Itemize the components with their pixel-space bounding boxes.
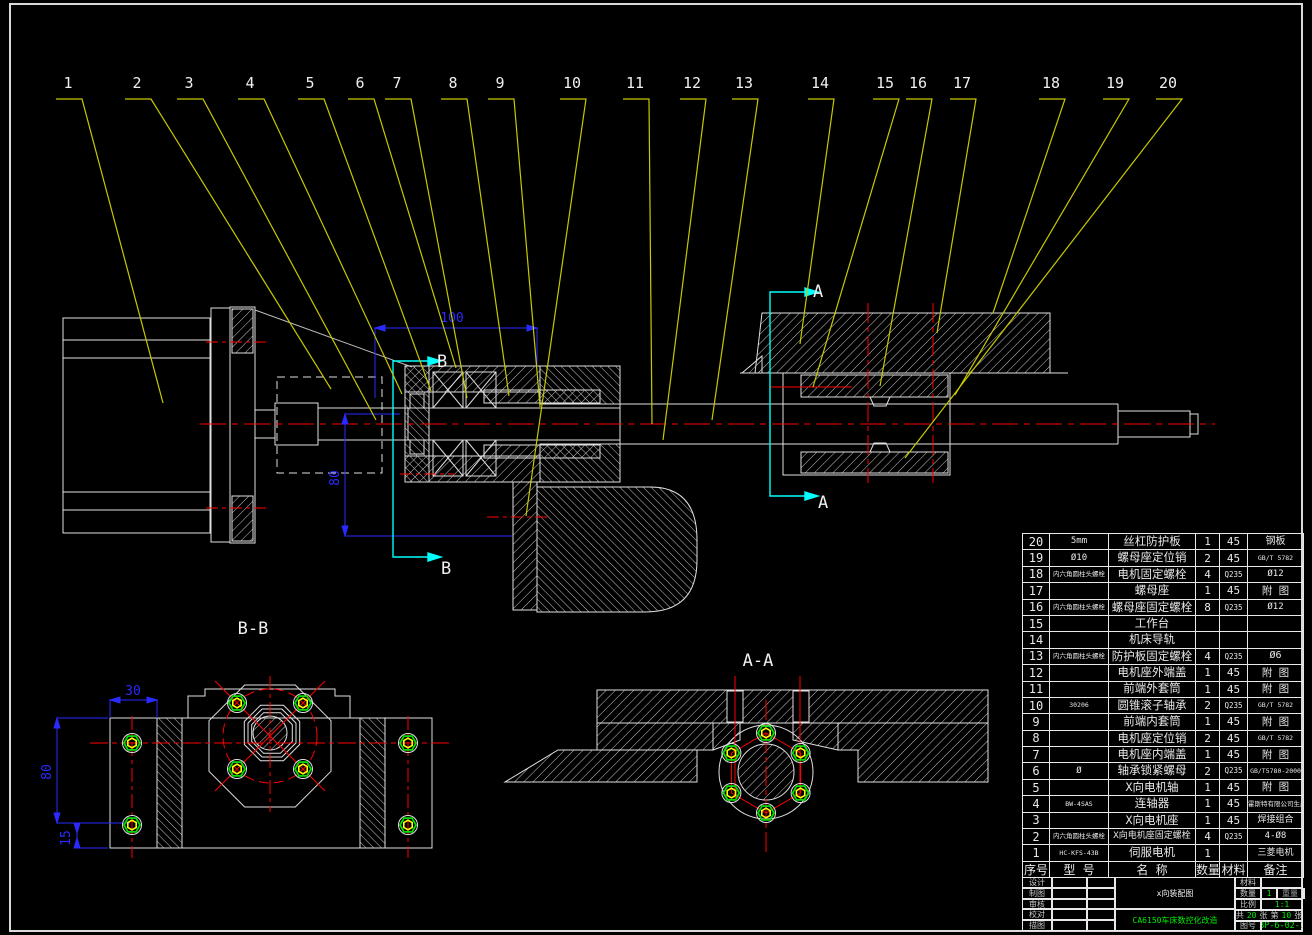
bom-model	[1050, 632, 1109, 648]
tb-sheets-total: 20	[1247, 911, 1257, 920]
callout-number-1: 1	[63, 74, 72, 92]
section-b-bottom: B	[441, 559, 451, 579]
bom-header-name: 名 称	[1109, 861, 1196, 877]
leader-line-4	[238, 99, 402, 394]
bom-qty: 2	[1196, 697, 1220, 713]
tb-sheets-l4: 张	[1294, 910, 1302, 921]
bom-model: Ø10	[1050, 550, 1109, 566]
tb-role-label: 描图	[1022, 920, 1052, 931]
bom-note: 附 图	[1248, 714, 1304, 730]
bom-name: 连轴器	[1109, 796, 1196, 812]
bom-row-7: 7电机座内端盖145附 图	[1023, 747, 1304, 763]
leader-line-9	[488, 99, 540, 407]
tb-sheets-l3: 第	[1271, 910, 1279, 921]
bom-seq: 20	[1023, 534, 1050, 550]
bom-model: 内六角圆柱头螺栓	[1050, 599, 1109, 615]
tb-sheets-l1: 共	[1236, 910, 1244, 921]
bom-header-row: 序号型 号名 称数量材料备注	[1023, 861, 1304, 877]
bom-header-model: 型 号	[1050, 861, 1109, 877]
bom-note: 焊接组合	[1248, 812, 1304, 828]
bom-name: 螺母座	[1109, 583, 1196, 599]
tb-role-label: 审核	[1022, 899, 1052, 910]
bom-header-seq: 序号	[1023, 861, 1050, 877]
bom-row-15: 15工作台	[1023, 615, 1304, 631]
bom-name: 电机座外端盖	[1109, 665, 1196, 681]
bom-seq: 16	[1023, 599, 1050, 615]
section-b-top: B	[437, 352, 447, 372]
bom-model	[1050, 681, 1109, 697]
bom-name: 螺母座固定螺栓	[1109, 599, 1196, 615]
bom-qty: 2	[1196, 730, 1220, 746]
aa-view-title: A-A	[743, 651, 774, 671]
bom-seq: 13	[1023, 648, 1050, 664]
bom-seq: 9	[1023, 714, 1050, 730]
bom-row-1: 1HC-KFS-43B伺服电机1三菱电机	[1023, 845, 1304, 861]
bom-qty	[1196, 632, 1220, 648]
callout-number-13: 13	[735, 74, 753, 92]
callout-number-4: 4	[245, 74, 254, 92]
bom-row-16: 16内六角圆柱头螺栓螺母座固定螺栓8Q235Ø12	[1023, 599, 1304, 615]
bom-note: 霍斯特有限公司生产	[1248, 796, 1304, 812]
bom-mat: Q235	[1220, 829, 1248, 845]
bom-mat: Q235	[1220, 697, 1248, 713]
tb-role-sign	[1087, 888, 1115, 899]
bom-note: 附 图	[1248, 681, 1304, 697]
bom-seq: 19	[1023, 550, 1050, 566]
bom-note: 附 图	[1248, 747, 1304, 763]
tb-scale-value: 1:1	[1261, 899, 1303, 910]
tb-weight-value	[1303, 888, 1305, 899]
bom-row-6: 6Ø轴承锁紧螺母2Q235GB/T5780-2000	[1023, 763, 1304, 779]
leader-line-17	[937, 99, 976, 333]
bom-mat: 45	[1220, 681, 1248, 697]
tb-role-sign	[1087, 920, 1115, 931]
tb-material-label: 材料	[1235, 877, 1261, 888]
bom-note: Ø12	[1248, 599, 1304, 615]
bom-mat: 45	[1220, 812, 1248, 828]
tb-sheets: 共20张第10张	[1235, 910, 1303, 921]
callout-number-8: 8	[448, 74, 457, 92]
bom-name: 机床导轨	[1109, 632, 1196, 648]
callout-number-7: 7	[392, 74, 401, 92]
bom-model: 内六角圆柱头螺栓	[1050, 829, 1109, 845]
bom-model: 内六角圆柱头螺栓	[1050, 648, 1109, 664]
bom-mat: Q235	[1220, 763, 1248, 779]
bom-qty: 2	[1196, 763, 1220, 779]
bom-note: 钢板	[1248, 534, 1304, 550]
tb-role-label: 制图	[1022, 888, 1052, 899]
bom-table: 205mm丝杠防护板145钢板19Ø10螺母座定位销245GB/T 578218…	[1022, 533, 1304, 878]
bom-qty: 1	[1196, 747, 1220, 763]
bom-mat	[1220, 632, 1248, 648]
bom-row-4: 4BW-4SAS连轴器145霍斯特有限公司生产	[1023, 796, 1304, 812]
bom-note: 附 图	[1248, 665, 1304, 681]
bom-row-3: 3X向电机座145焊接组合	[1023, 812, 1304, 828]
bom-qty: 1	[1196, 534, 1220, 550]
section-view-bb	[110, 685, 432, 848]
bom-header-mat: 材料	[1220, 861, 1248, 877]
bom-name: 螺母座定位销	[1109, 550, 1196, 566]
bom-model: HC-KFS-43B	[1050, 845, 1109, 861]
bom-mat: Q235	[1220, 648, 1248, 664]
bom-model: 30206	[1050, 697, 1109, 713]
title-block: 设计制图审核校对描图x向装配图CA6150车床数控化改造材料数量1重量比例1:1…	[1022, 877, 1303, 931]
bom-qty: 1	[1196, 714, 1220, 730]
bom-mat: 45	[1220, 583, 1248, 599]
bom-model	[1050, 665, 1109, 681]
bom-note: Ø12	[1248, 566, 1304, 582]
bom-row-13: 13内六角圆柱头螺栓防护板固定螺栓4Q235Ø6	[1023, 648, 1304, 664]
bom-qty: 1	[1196, 779, 1220, 795]
bom-qty: 2	[1196, 550, 1220, 566]
bom-name: 轴承锁紧螺母	[1109, 763, 1196, 779]
bom-qty: 4	[1196, 829, 1220, 845]
bom-name: 前端内套筒	[1109, 714, 1196, 730]
bom-note: 三菱电机	[1248, 845, 1304, 861]
bom-mat: 45	[1220, 550, 1248, 566]
section-view-aa	[505, 690, 988, 819]
tb-role-label: 设计	[1022, 877, 1052, 888]
dim-15: 15	[59, 830, 74, 846]
leader-line-12	[663, 99, 706, 440]
bom-name: X向电机座固定螺栓	[1109, 829, 1196, 845]
leader-line-18	[993, 99, 1065, 313]
dim-bb-80: 80	[40, 764, 55, 780]
leader-line-2	[125, 99, 331, 389]
bom-note	[1248, 632, 1304, 648]
tb-role-value	[1052, 877, 1087, 888]
section-a-top: A	[813, 282, 823, 302]
bom-seq: 8	[1023, 730, 1050, 746]
bom-qty: 1	[1196, 583, 1220, 599]
tb-role-value	[1052, 888, 1087, 899]
callout-number-16: 16	[909, 74, 927, 92]
bom-qty: 1	[1196, 665, 1220, 681]
callout-number-12: 12	[683, 74, 701, 92]
tb-role-value	[1052, 909, 1087, 920]
bom-mat: 45	[1220, 796, 1248, 812]
bom-qty	[1196, 615, 1220, 631]
bom-model: BW-4SAS	[1050, 796, 1109, 812]
bom-row-19: 19Ø10螺母座定位销245GB/T 5782	[1023, 550, 1304, 566]
bom-name: 丝杠防护板	[1109, 534, 1196, 550]
bom-name: 圆锥滚子轴承	[1109, 697, 1196, 713]
bom-model	[1050, 583, 1109, 599]
tb-material-value	[1261, 877, 1303, 888]
dim-80: 80	[328, 470, 343, 486]
bom-mat: 45	[1220, 779, 1248, 795]
bom-mat: 45	[1220, 730, 1248, 746]
bom-qty: 1	[1196, 812, 1220, 828]
cad-drawing-page: 100 80 B B A A	[0, 0, 1312, 935]
bom-row-11: 11前端外套筒145附 图	[1023, 681, 1304, 697]
bom-name: X向电机座	[1109, 812, 1196, 828]
bom-name: 电机座内端盖	[1109, 747, 1196, 763]
callout-number-20: 20	[1159, 74, 1177, 92]
worktable-rail	[740, 313, 1068, 373]
bom-mat: 45	[1220, 747, 1248, 763]
bom-model	[1050, 812, 1109, 828]
bom-mat: Q235	[1220, 599, 1248, 615]
bom-row-18: 18内六角圆柱头螺栓电机固定螺栓4Q235Ø12	[1023, 566, 1304, 582]
callout-number-5: 5	[305, 74, 314, 92]
bom-model: Ø	[1050, 763, 1109, 779]
bom-seq: 4	[1023, 796, 1050, 812]
section-a-bottom: A	[818, 493, 828, 513]
bom-model	[1050, 730, 1109, 746]
bom-seq: 5	[1023, 779, 1050, 795]
bom-mat	[1220, 615, 1248, 631]
callout-number-6: 6	[355, 74, 364, 92]
bom-qty: 4	[1196, 648, 1220, 664]
project-name: CA6150车床数控化改造	[1115, 909, 1235, 931]
bom-row-2: 2内六角圆柱头螺栓X向电机座固定螺栓4Q2354-Ø8	[1023, 829, 1304, 845]
tb-weight-label: 重量	[1277, 888, 1303, 899]
bom-qty: 8	[1196, 599, 1220, 615]
bom-mat: 45	[1220, 714, 1248, 730]
bom-seq: 11	[1023, 681, 1050, 697]
bom-row-8: 8电机座定位销245GB/T 5782	[1023, 730, 1304, 746]
callout-number-15: 15	[876, 74, 894, 92]
tb-qty-value: 1	[1261, 888, 1277, 899]
centerlines	[200, 303, 1215, 517]
bom-mat: Q235	[1220, 566, 1248, 582]
bom-seq: 2	[1023, 829, 1050, 845]
tb-drawingno-label: 图号	[1235, 921, 1261, 932]
leader-line-3	[177, 99, 376, 420]
bom-row-9: 9前端内套筒145附 图	[1023, 714, 1304, 730]
leader-line-5	[298, 99, 431, 391]
bom-seq: 7	[1023, 747, 1050, 763]
bom-qty: 1	[1196, 681, 1220, 697]
callout-number-10: 10	[563, 74, 581, 92]
callout-number-2: 2	[132, 74, 141, 92]
bom-name: 工作台	[1109, 615, 1196, 631]
bom-seq: 15	[1023, 615, 1050, 631]
servo-motor	[63, 307, 255, 543]
bom-note: GB/T 5782	[1248, 730, 1304, 746]
tb-role-label: 校对	[1022, 909, 1052, 920]
bom-name: X向电机轴	[1109, 779, 1196, 795]
bom-name: 防护板固定螺栓	[1109, 648, 1196, 664]
bom-mat: 45	[1220, 534, 1248, 550]
bom-seq: 12	[1023, 665, 1050, 681]
bom-seq: 14	[1023, 632, 1050, 648]
tb-drawingno-value: 2BP-6-02-10	[1261, 921, 1303, 932]
tb-role-sign	[1087, 899, 1115, 910]
bom-note: 附 图	[1248, 583, 1304, 599]
tb-role-sign	[1087, 877, 1115, 888]
leader-line-7	[385, 99, 467, 398]
mount-gusset	[255, 310, 412, 367]
bom-name: 前端外套筒	[1109, 681, 1196, 697]
bom-qty: 1	[1196, 845, 1220, 861]
bom-row-20: 205mm丝杠防护板145钢板	[1023, 534, 1304, 550]
bom-seq: 17	[1023, 583, 1050, 599]
bom-qty: 1	[1196, 796, 1220, 812]
tb-sheets-page: 10	[1282, 911, 1292, 920]
bom-model	[1050, 714, 1109, 730]
bom-seq: 10	[1023, 697, 1050, 713]
callout-number-11: 11	[626, 74, 644, 92]
bom-name: 伺服电机	[1109, 845, 1196, 861]
bom-note: GB/T5780-2000	[1248, 763, 1304, 779]
bom-row-12: 12电机座外端盖145附 图	[1023, 665, 1304, 681]
bom-model: 5mm	[1050, 534, 1109, 550]
tb-qty-label: 数量	[1235, 888, 1261, 899]
bom-header-qty: 数量	[1196, 861, 1220, 877]
bom-model	[1050, 779, 1109, 795]
leader-line-1	[56, 99, 163, 403]
bom-note: 附 图	[1248, 779, 1304, 795]
callout-number-18: 18	[1042, 74, 1060, 92]
bom-note: GB/T 5782	[1248, 697, 1304, 713]
bom-model	[1050, 615, 1109, 631]
bom-name: 电机固定螺栓	[1109, 566, 1196, 582]
bom-model	[1050, 747, 1109, 763]
bom-mat: 45	[1220, 665, 1248, 681]
bom-row-5: 5X向电机轴145附 图	[1023, 779, 1304, 795]
dim-30: 30	[125, 684, 141, 699]
bom-row-14: 14机床导轨	[1023, 632, 1304, 648]
bom-note: GB/T 5782	[1248, 550, 1304, 566]
bb-centerlines	[90, 676, 450, 858]
bom-mat	[1220, 845, 1248, 861]
bom-seq: 3	[1023, 812, 1050, 828]
bom-note	[1248, 615, 1304, 631]
bom-seq: 1	[1023, 845, 1050, 861]
callout-number-3: 3	[184, 74, 193, 92]
tb-sheets-l2: 张	[1260, 910, 1268, 921]
tb-role-sign	[1087, 909, 1115, 920]
tb-scale-label: 比例	[1235, 899, 1261, 910]
leader-line-14	[800, 99, 834, 344]
housing-foot	[513, 482, 697, 612]
bom-header-note: 备注	[1248, 861, 1304, 877]
leader-line-11	[623, 99, 652, 424]
bom-seq: 18	[1023, 566, 1050, 582]
callout-number-14: 14	[811, 74, 829, 92]
bom-note: Ø6	[1248, 648, 1304, 664]
bom-row-17: 17螺母座145附 图	[1023, 583, 1304, 599]
tb-role-value	[1052, 920, 1087, 931]
bom-note: 4-Ø8	[1248, 829, 1304, 845]
bom-qty: 4	[1196, 566, 1220, 582]
bom-model: 内六角圆柱头螺栓	[1050, 566, 1109, 582]
bb-view-title: B-B	[238, 619, 269, 639]
bom-name: 电机座定位销	[1109, 730, 1196, 746]
tb-role-value	[1052, 899, 1087, 910]
callout-number-19: 19	[1106, 74, 1124, 92]
bom-row-10: 1030206圆锥滚子轴承2Q235GB/T 5782	[1023, 697, 1304, 713]
drawing-title: x向装配图	[1115, 877, 1235, 909]
bom-seq: 6	[1023, 763, 1050, 779]
callout-number-17: 17	[953, 74, 971, 92]
coupling	[255, 377, 408, 473]
callout-number-9: 9	[495, 74, 504, 92]
